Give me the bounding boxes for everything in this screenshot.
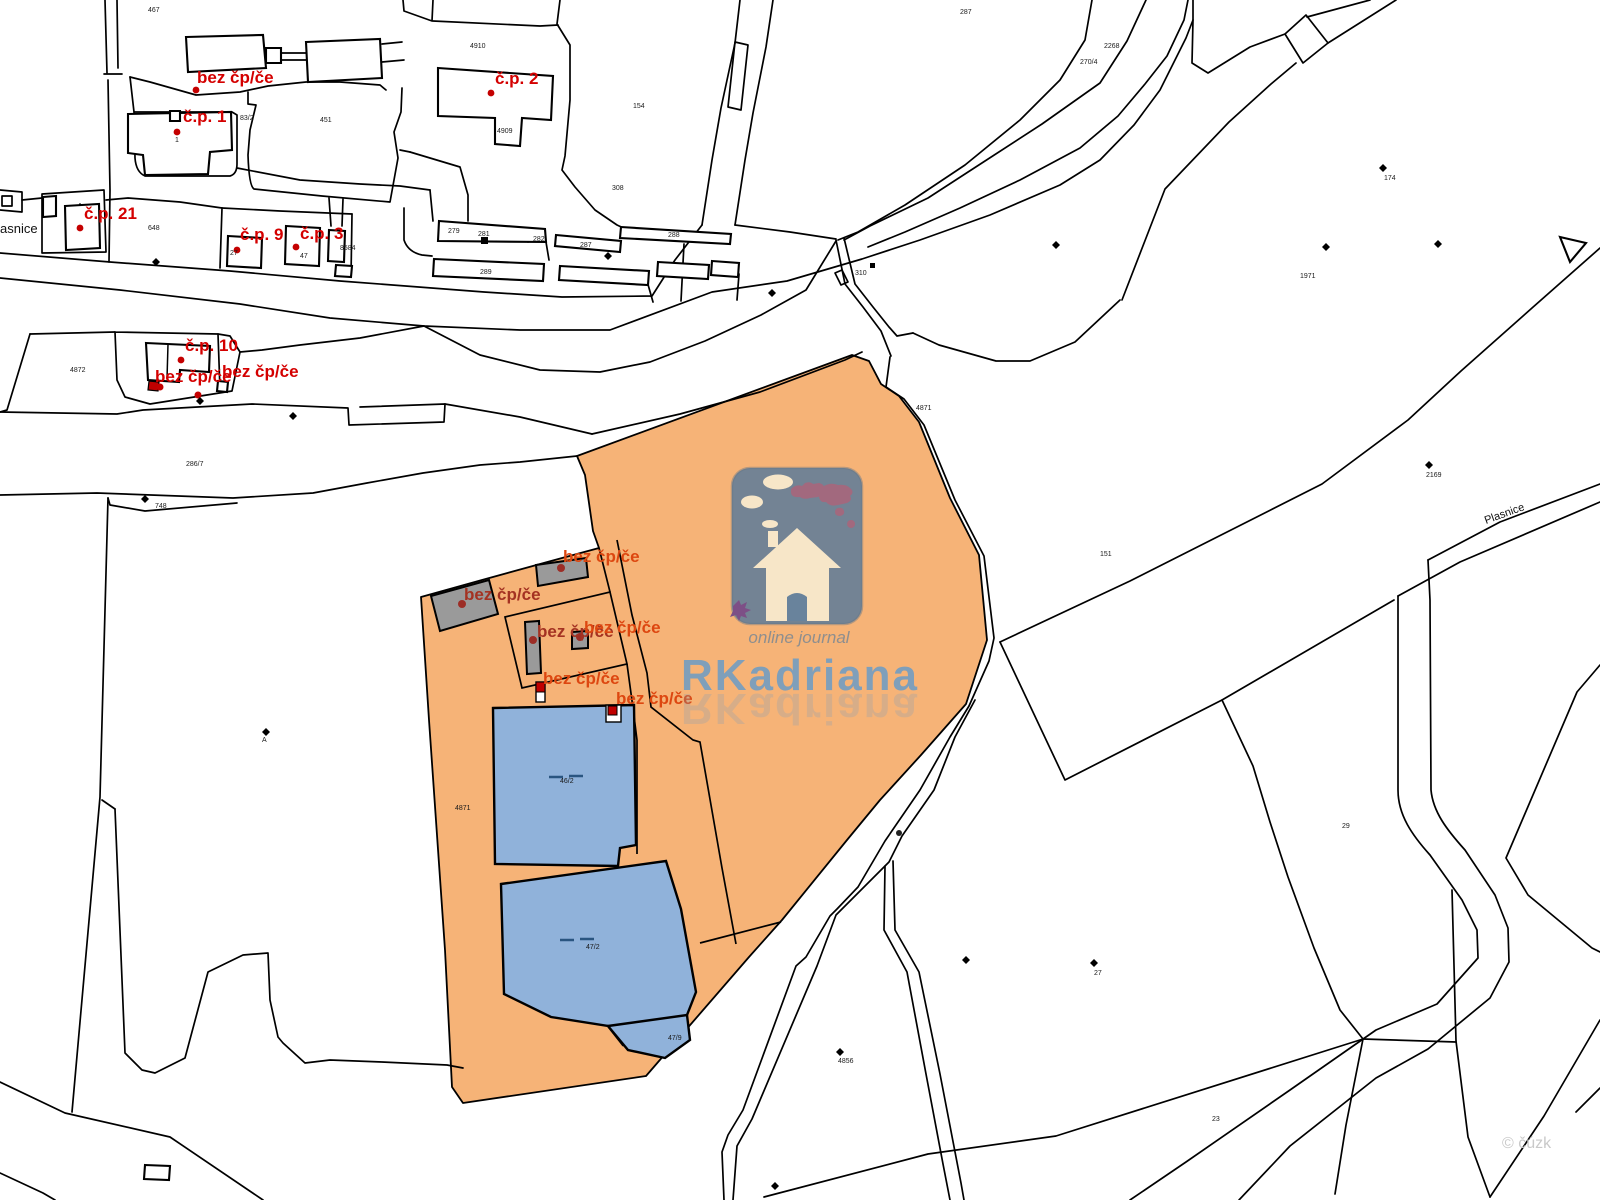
svg-text:748: 748 [155,503,167,510]
svg-text:bez čp/če: bez čp/če [543,669,620,688]
svg-text:451: 451 [320,117,332,124]
svg-text:288: 288 [668,232,680,239]
svg-text:1: 1 [175,137,179,144]
svg-text:287: 287 [580,242,592,249]
svg-text:© čúzk: © čúzk [1502,1135,1552,1152]
svg-text:174: 174 [1384,175,1396,182]
svg-text:4872: 4872 [70,367,86,374]
svg-text:4856: 4856 [838,1058,854,1065]
svg-text:83/2: 83/2 [240,115,254,122]
svg-text:47/9: 47/9 [668,1035,682,1042]
svg-text:online journal: online journal [748,628,850,647]
svg-text:286/7: 286/7 [186,461,204,468]
svg-text:281: 281 [478,231,490,238]
svg-text:č.p. 2: č.p. 2 [495,69,538,88]
svg-text:47: 47 [300,253,308,260]
svg-text:bez čp/če: bez čp/če [222,362,299,381]
svg-text:4871: 4871 [916,405,932,412]
svg-text:467: 467 [148,7,160,14]
svg-text:282: 282 [533,236,545,243]
svg-text:46/2: 46/2 [560,778,574,785]
svg-text:27: 27 [1094,970,1102,977]
svg-text:151: 151 [1100,551,1112,558]
svg-text:648: 648 [148,225,160,232]
svg-text:4909: 4909 [497,128,513,135]
svg-text:č.p. 1: č.p. 1 [183,107,226,126]
svg-text:A: A [262,737,267,744]
svg-text:4910: 4910 [470,43,486,50]
svg-text:2268: 2268 [1104,43,1120,50]
svg-text:RKadriana: RKadriana [681,684,919,733]
svg-text:8584: 8584 [340,245,356,252]
svg-text:47/2: 47/2 [586,944,600,951]
svg-text:270/4: 270/4 [1080,59,1098,66]
svg-text:č.p. 9: č.p. 9 [240,225,283,244]
svg-text:310: 310 [855,270,867,277]
svg-text:bez čp/če: bez čp/če [197,68,274,87]
svg-text:279: 279 [448,228,460,235]
svg-text:bez čp/če: bez čp/če [584,618,661,637]
svg-text:č.p. 21: č.p. 21 [84,204,137,223]
svg-text:asnice: asnice [0,221,38,236]
svg-text:2169: 2169 [1426,472,1442,479]
svg-text:č.p. 10: č.p. 10 [185,336,238,355]
svg-text:1971: 1971 [1300,273,1316,280]
svg-text:bez čp/če: bez čp/če [464,585,541,604]
svg-text:289: 289 [480,269,492,276]
svg-text:bez čp/če: bez čp/če [563,547,640,566]
svg-text:308: 308 [612,185,624,192]
svg-text:287: 287 [960,9,972,16]
svg-text:bez čp/če: bez čp/če [155,367,232,386]
svg-text:23: 23 [1212,1116,1220,1123]
svg-text:27: 27 [230,250,238,257]
svg-text:4871: 4871 [455,805,471,812]
svg-text:č.p. 3: č.p. 3 [300,224,343,243]
svg-text:29: 29 [1342,823,1350,830]
svg-text:154: 154 [633,103,645,110]
